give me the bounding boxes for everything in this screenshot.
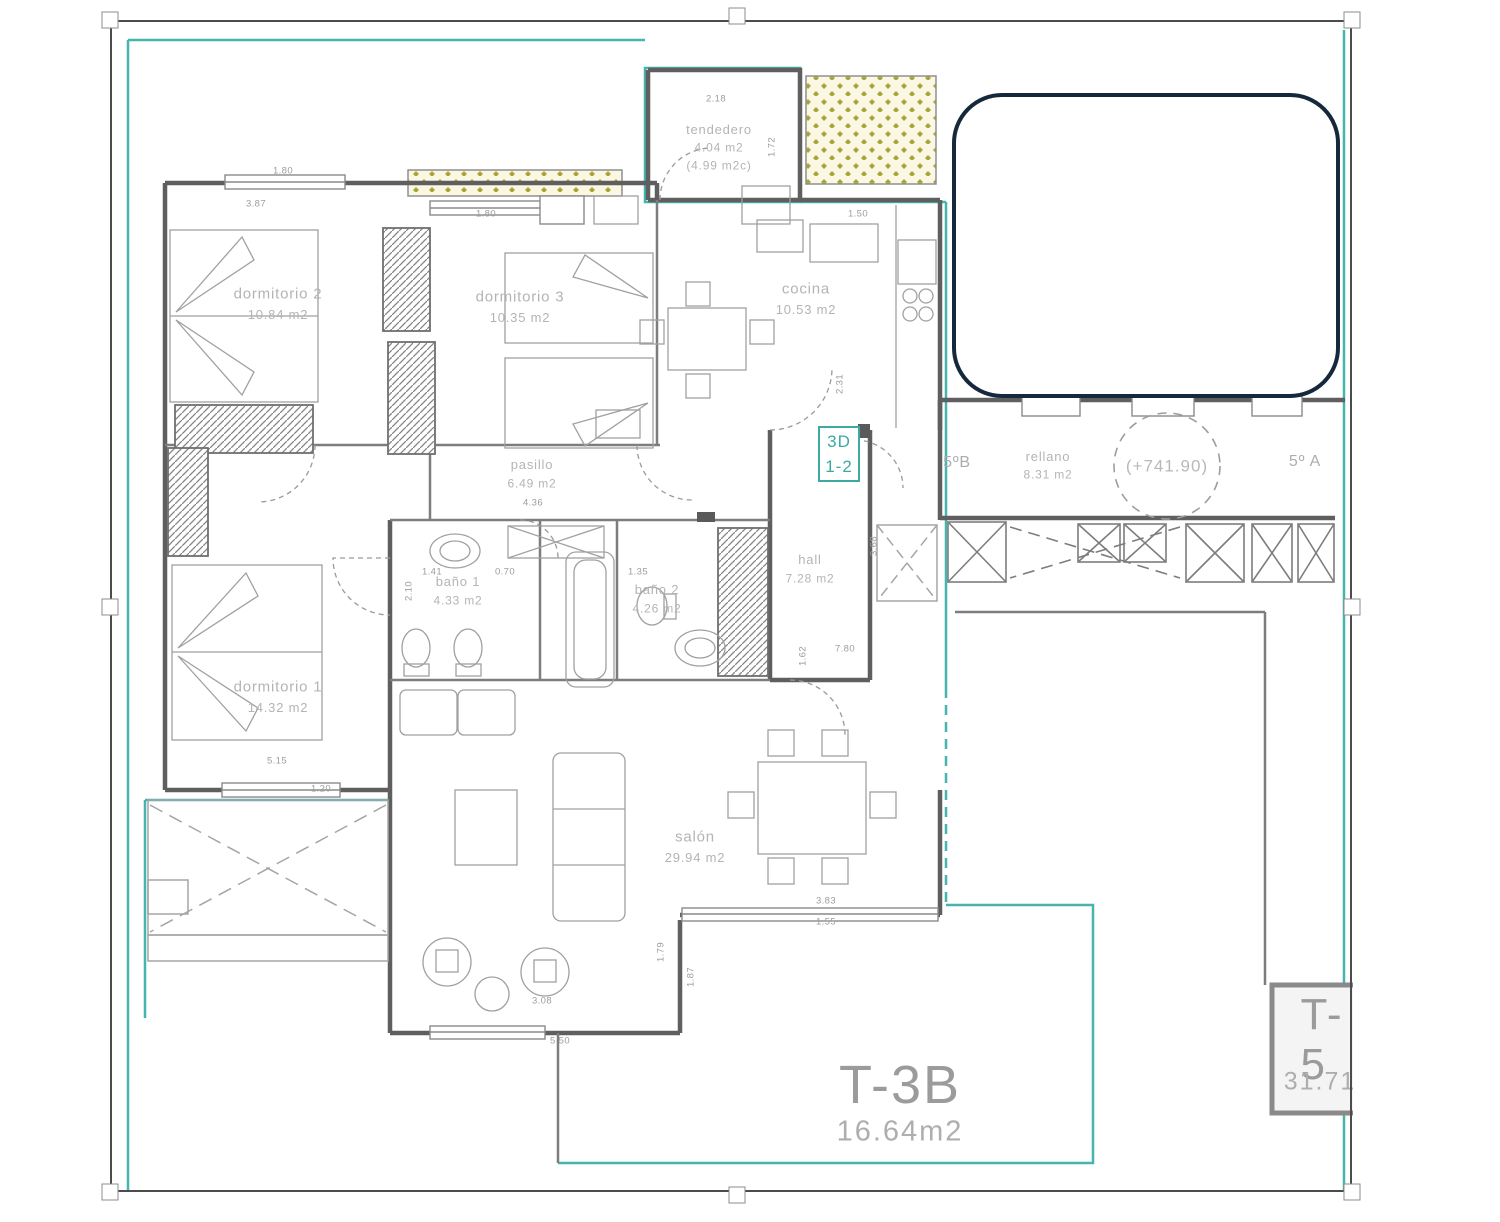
dimension-label: 1.41 (422, 567, 442, 578)
dimension-label: 1.62 (798, 646, 809, 666)
dimension-label: 1.80 (273, 166, 293, 177)
dimension-label: 7.80 (835, 644, 855, 655)
selection-handle-top-middle[interactable] (729, 8, 746, 25)
room-area2-tendedero: (4.99 m2c) (686, 159, 751, 174)
room-area-bano-1: 4.33 m2 (434, 594, 483, 609)
room-area-rellano: 8.31 m2 (1024, 468, 1073, 483)
room-area-tendedero: 4.04 m2 (695, 141, 744, 156)
room-label-bano-2: baño 2 (635, 582, 680, 598)
unit-label-5a: 5º A (1289, 452, 1321, 472)
dimension-label: 2.10 (404, 581, 415, 601)
room-area-salon: 29.94 m2 (665, 850, 726, 866)
room-label-pasillo: pasillo (511, 457, 553, 473)
hatched-patio-areas (408, 76, 936, 196)
room-area-dormitorio-2: 10.84 m2 (248, 307, 309, 323)
dimension-label: 1.79 (656, 942, 667, 962)
room-label-cocina: cocina (782, 281, 830, 300)
room-area-pasillo: 6.49 m2 (508, 477, 557, 492)
dimension-label: 5.50 (550, 1036, 570, 1047)
redaction-box (952, 93, 1340, 398)
terrace-t3b-code: T-3B (839, 1054, 961, 1116)
dimension-label: 2.31 (835, 374, 846, 394)
stair-elevator-band (948, 522, 1334, 582)
dimension-label: 5.15 (267, 756, 287, 767)
room-area-hall: 7.28 m2 (786, 572, 835, 587)
plan-reference-line2: 1-2 (820, 455, 858, 480)
dimension-label: 4.36 (523, 498, 543, 509)
room-label-dormitorio-3: dormitorio 3 (476, 289, 565, 308)
plan-reference-line1: 3D (820, 430, 858, 455)
room-label-tendedero: tendedero (686, 122, 752, 138)
selection-handle-bottom-right[interactable] (1344, 1184, 1361, 1201)
room-area-cocina: 10.53 m2 (776, 302, 837, 318)
dimension-label: 3.87 (246, 199, 266, 210)
dimension-label: 2.18 (706, 94, 726, 105)
dimension-label: 1.80 (476, 209, 496, 220)
selection-handle-top-left[interactable] (102, 12, 119, 29)
room-label-dormitorio-1: dormitorio 1 (234, 679, 323, 698)
selection-handle-bottom-middle[interactable] (729, 1187, 746, 1204)
dimension-label: 0.70 (495, 567, 515, 578)
selection-handle-top-right[interactable] (1344, 12, 1361, 29)
plan-reference-box: 3D 1-2 (818, 426, 860, 482)
dimension-label: 1.87 (686, 967, 697, 987)
room-label-bano-1: baño 1 (436, 574, 481, 590)
dimension-label: 1.20 (311, 784, 331, 795)
room-area-dormitorio-1: 14.32 m2 (248, 700, 309, 716)
terrace-t5-area: 31.71 (1284, 1068, 1353, 1097)
selection-handle-middle-left[interactable] (102, 599, 119, 616)
room-label-hall: hall (798, 552, 821, 568)
room-label-rellano: rellano (1026, 449, 1071, 465)
dimension-label: 3.08 (532, 996, 552, 1007)
dimension-label: 1.50 (848, 209, 868, 220)
level-mark-label: (+741.90) (1126, 455, 1208, 476)
selection-handle-bottom-left[interactable] (102, 1184, 119, 1201)
room-area-dormitorio-3: 10.35 m2 (490, 310, 551, 326)
floor-plan-image[interactable]: dormitorio 2 10.84 m2 dormitorio 3 10.35… (0, 0, 1353, 1222)
floor-plan-screenshot: dormitorio 2 10.84 m2 dormitorio 3 10.35… (0, 0, 1500, 1222)
dimension-label: 1.55 (816, 917, 836, 928)
room-label-dormitorio-2: dormitorio 2 (234, 286, 323, 305)
dimension-label: 1.72 (767, 137, 778, 157)
dimension-label: 1.35 (628, 567, 648, 578)
terrace-t3b-area: 16.64m2 (837, 1116, 964, 1149)
selection-handle-middle-right[interactable] (1344, 599, 1361, 616)
room-label-salon: salón (675, 829, 715, 848)
unit-label-5b: 5ºB (943, 453, 971, 473)
dimension-label: 3.83 (816, 896, 836, 907)
room-area-bano-2: 4.26 m2 (633, 602, 682, 617)
dimension-label: 3.68 (869, 536, 880, 556)
